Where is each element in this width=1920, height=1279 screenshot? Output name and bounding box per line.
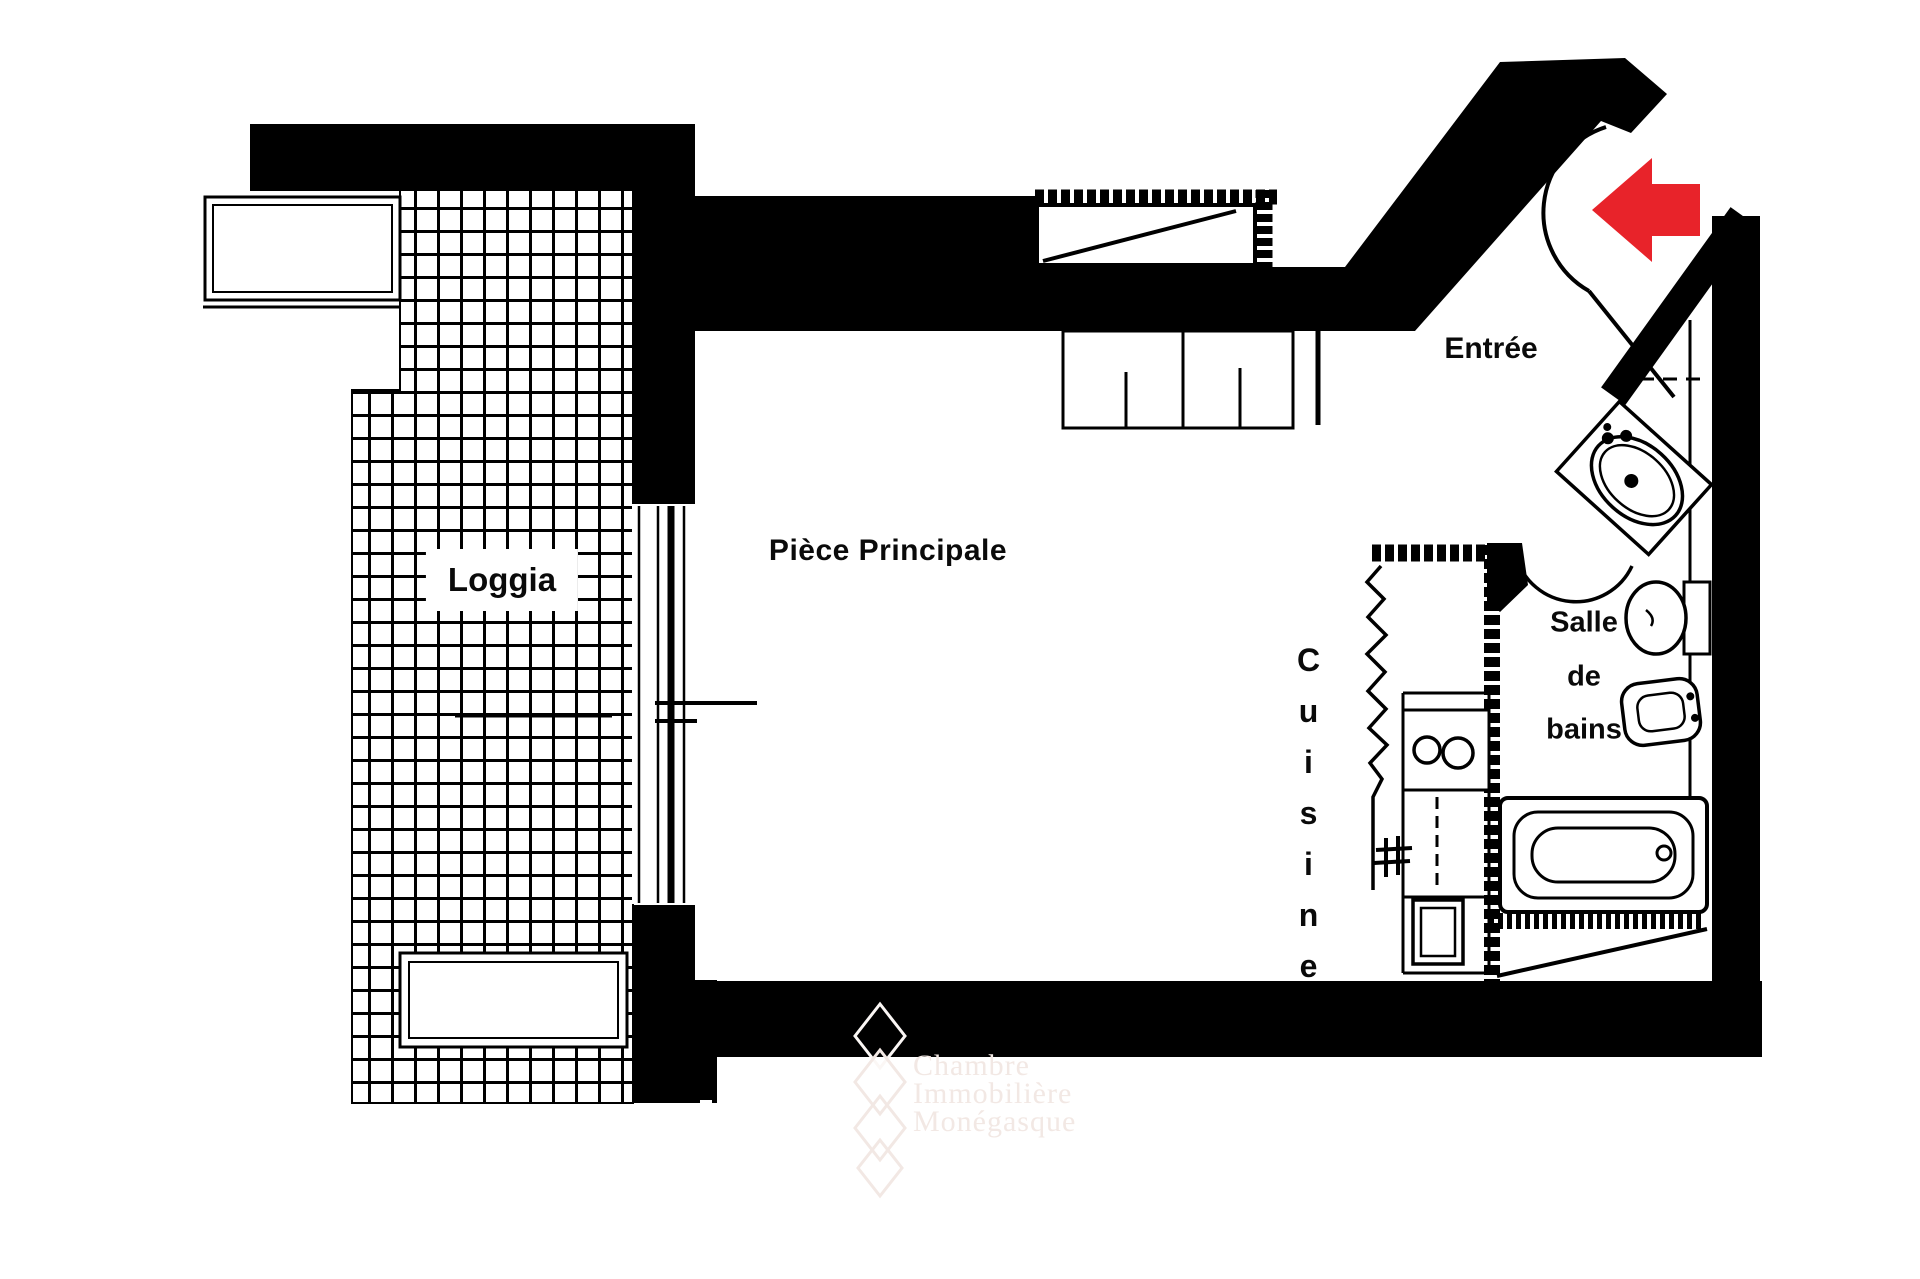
entry-direction-arrow-icon: [1592, 158, 1700, 262]
entry-closet: [1037, 205, 1255, 265]
watermark-text-line: Monégasque: [913, 1105, 1076, 1139]
bathroom-label-line: Salle: [1546, 597, 1622, 651]
bathroom-corner-diagonal: [1497, 929, 1707, 976]
planter-top-left: [203, 197, 400, 307]
wall-bottom: [715, 981, 1762, 1057]
wall-right: [1712, 216, 1760, 1018]
drain-hash-icon: [1374, 836, 1412, 877]
main-room-label: Pièce Principale: [769, 534, 1007, 568]
bathroom-label-line: de: [1546, 650, 1622, 704]
floor-plan: Loggia Pièce Principale Entrée Salle de …: [0, 0, 1920, 1279]
wall-loggia-foot: [633, 980, 717, 1100]
planter-loggia: [400, 953, 627, 1047]
bathroom-door-swing-arc-icon: [1516, 556, 1632, 602]
wardrobe-icon: [1063, 331, 1293, 428]
kitchen-area: [1367, 566, 1489, 973]
wall-top-left: [250, 124, 695, 191]
bidet-icon: [1620, 677, 1703, 748]
washbasin-icon: [1556, 402, 1711, 555]
wall-loggia-upper: [633, 124, 695, 504]
kitchen-label: Cuisine: [1290, 642, 1327, 999]
loggia-label: Loggia: [426, 549, 578, 611]
toilet-icon: [1626, 582, 1710, 654]
bathtub-icon: [1500, 798, 1707, 912]
stove-burner-icon: [1414, 737, 1440, 763]
bathroom-label: Salle de bains: [1546, 597, 1622, 758]
bathtub-drain: [1657, 846, 1671, 860]
bathroom-label-line: bains: [1546, 704, 1622, 758]
stove-burner-icon: [1443, 738, 1473, 768]
entrance-label: Entrée: [1444, 332, 1537, 366]
